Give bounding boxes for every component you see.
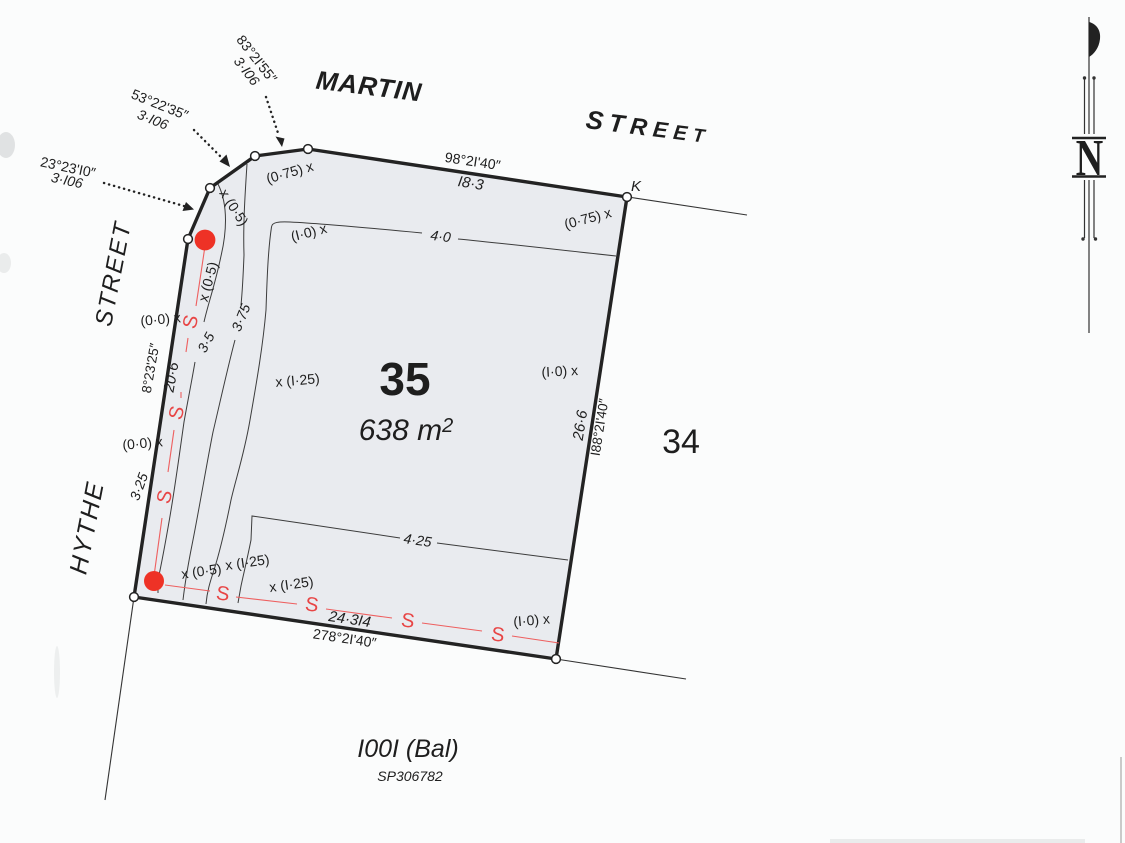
svg-text:N: N	[1076, 128, 1104, 186]
svg-text:4·0: 4·0	[430, 227, 452, 245]
svg-text:35: 35	[379, 353, 430, 405]
svg-text:K: K	[631, 178, 642, 195]
svg-text:SP306782: SP306782	[377, 768, 443, 784]
svg-text:I00I (Bal): I00I (Bal)	[357, 735, 458, 763]
svg-text:34: 34	[662, 423, 700, 461]
svg-text:638 m2: 638 m2	[359, 414, 454, 447]
svg-text:(I·0) x: (I·0) x	[513, 610, 551, 629]
svg-text:(I·0) x: (I·0) x	[541, 362, 578, 380]
